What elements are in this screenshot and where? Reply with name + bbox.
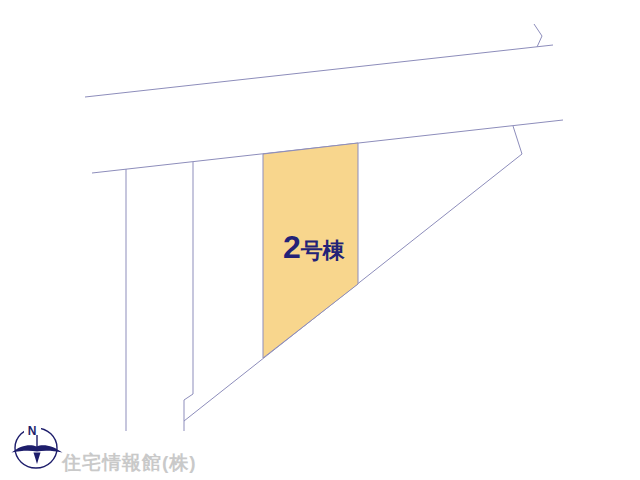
parcel-label-number: 2 xyxy=(283,229,301,265)
compass: N xyxy=(12,422,63,468)
site-plan-canvas: 2号棟 N 住宅情報館(株) xyxy=(0,0,640,480)
triangle-corner-segment xyxy=(513,126,522,154)
boundary-zigzag-mark xyxy=(534,24,542,47)
company-watermark: 住宅情報館(株) xyxy=(61,452,197,473)
site-plan-drawing: 2号棟 N 住宅情報館(株) xyxy=(0,0,640,480)
compass-bird-tail xyxy=(34,453,41,465)
road-edge-upper xyxy=(85,45,553,97)
lot-divider-2 xyxy=(184,162,193,431)
compass-north-label: N xyxy=(28,424,37,438)
parcel-label-suffix: 号棟 xyxy=(300,238,346,263)
